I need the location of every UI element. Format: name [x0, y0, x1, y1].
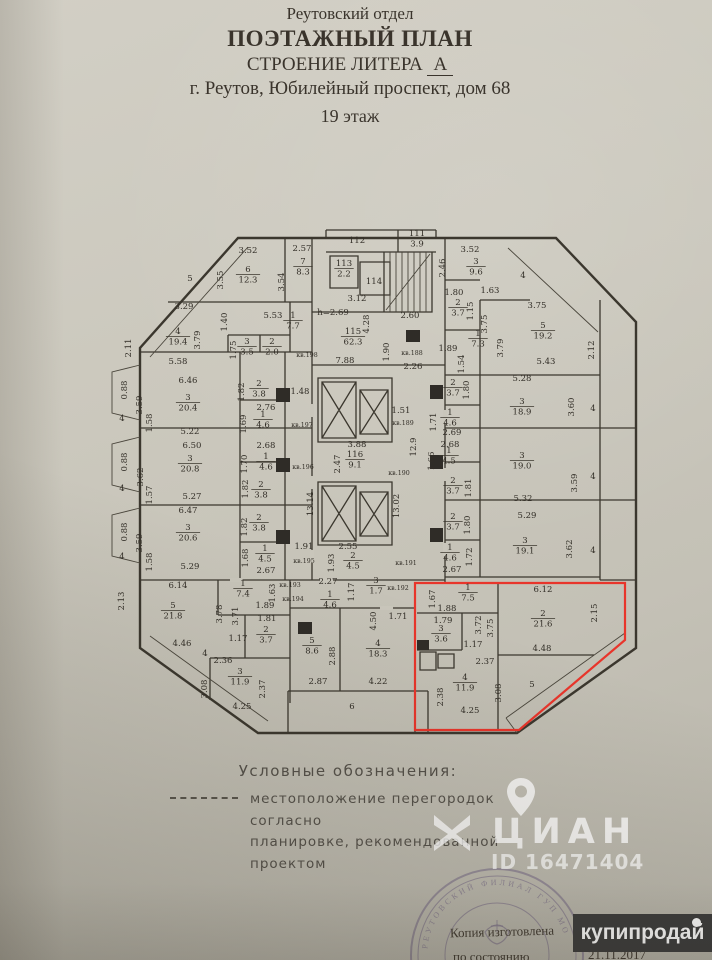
- plan-label: 2.15: [590, 604, 600, 623]
- plan-label: 1: [475, 329, 480, 339]
- plan-label: 4.6: [256, 421, 270, 431]
- plan-label: 20.8: [181, 465, 200, 475]
- plan-label: 11.9: [456, 684, 475, 694]
- plan-label: 5: [529, 680, 534, 690]
- plan-label: 3.52: [461, 245, 480, 255]
- plan-label: 3.59: [135, 534, 145, 553]
- plan-label: 1.7: [369, 587, 383, 597]
- plan-label: 1.57: [145, 486, 155, 505]
- plan-label: 0.88: [120, 381, 130, 400]
- plan-label: 114: [366, 277, 382, 287]
- plan-label: 2: [263, 625, 268, 635]
- plan-label: 2.27: [319, 577, 338, 587]
- plan-label: 4.6: [323, 601, 337, 611]
- plan-label: 6: [245, 265, 250, 275]
- plan-label: 2: [258, 480, 263, 490]
- plan-label: 3.08: [494, 684, 504, 703]
- plan-label: 2.11: [124, 339, 134, 358]
- plan-label: 113: [336, 259, 352, 269]
- copy-state-line: по состоянию: [453, 949, 529, 960]
- plan-label: 21.6: [534, 620, 553, 630]
- plan-label: 2.88: [328, 647, 338, 666]
- plan-label: 5.58: [169, 357, 188, 367]
- copy-made-line: Копия изготовлена: [450, 923, 554, 942]
- plan-label: 1.82: [241, 480, 251, 499]
- plan-label: 7.7: [286, 322, 300, 332]
- plan-label: кв.197: [291, 422, 313, 429]
- plan-label: 1: [447, 408, 452, 418]
- plan-label: 1: [262, 544, 267, 554]
- door-openings: [230, 404, 447, 610]
- plan-label: 3: [438, 624, 443, 634]
- plan-label: 4.6: [259, 463, 273, 473]
- plan-label: 1: [263, 452, 268, 462]
- plan-label: 1.81: [258, 614, 277, 624]
- plan-label: 6.47: [179, 506, 198, 516]
- plan-label: 111: [409, 229, 425, 239]
- plan-label: 13.02: [392, 494, 402, 518]
- plan-label: 1: [447, 543, 452, 553]
- plan-label: 1: [446, 446, 451, 456]
- plan-label: 1.71: [429, 413, 439, 432]
- plan-label: 1.67: [428, 590, 438, 609]
- plan-label: 3.79: [193, 331, 203, 350]
- plan-label: кв.194: [282, 596, 304, 603]
- plan-label: 1: [240, 579, 245, 589]
- plan-label: 1.40: [220, 313, 230, 332]
- plan-label: 4.46: [173, 639, 192, 649]
- plan-label: 5.53: [264, 311, 283, 321]
- plan-label: 1.71: [389, 612, 408, 622]
- plan-label: 3.7: [446, 487, 460, 497]
- plan-label: 1.89: [439, 344, 458, 354]
- plan-label: 3: [519, 451, 524, 461]
- plan-label: 1.51: [392, 406, 411, 416]
- plan-label: 3: [373, 576, 378, 586]
- plan-label: 4: [119, 484, 124, 494]
- plan-label: 3.75: [480, 315, 490, 334]
- plan-label: 4.5: [442, 457, 456, 467]
- plan-label: 1: [290, 311, 295, 321]
- cian-watermark-brand: ЦИАН: [492, 812, 638, 852]
- plan-label: кв.189: [392, 420, 414, 427]
- plan-label: 1.17: [229, 634, 248, 644]
- plan-label: 1.63: [481, 286, 500, 296]
- plan-label: 1.54: [457, 355, 467, 374]
- plan-label: 1.90: [382, 343, 392, 362]
- plan-label: 7: [300, 257, 305, 267]
- building-line: СТРОЕНИЕ ЛИТЕРА А: [0, 54, 700, 76]
- plan-label: 2.47: [333, 455, 343, 474]
- plan-label: 2: [450, 378, 455, 388]
- plan-label: 5.27: [183, 492, 202, 502]
- plan-label: 2.38: [436, 688, 446, 707]
- plan-label: 4.25: [461, 706, 480, 716]
- plan-label: 3.71: [231, 607, 241, 626]
- legend-text-line1: местоположение перегородок согласно: [250, 789, 528, 832]
- plan-label: 9.6: [469, 268, 483, 278]
- plan-label: 3.8: [252, 524, 266, 534]
- plan-label: 1: [327, 590, 332, 600]
- plan-label: 1.91: [295, 542, 314, 552]
- plan-label: 2.36: [214, 656, 233, 666]
- dashed-line-symbol: [170, 797, 238, 799]
- plan-label: 115: [345, 327, 361, 337]
- plan-label: 5.29: [518, 511, 537, 521]
- legend: Условные обозначения: местоположение пер…: [168, 762, 528, 875]
- plan-label: 4.5: [258, 555, 272, 565]
- plan-label: 6.46: [179, 376, 198, 386]
- plan-label: 3.59: [570, 474, 580, 493]
- plan-label: кв.191: [395, 560, 417, 567]
- plan-label: кв.196: [292, 464, 314, 471]
- plan-label: кв.190: [388, 470, 410, 477]
- plan-label: 8.6: [305, 647, 319, 657]
- plan-label: 2: [540, 609, 545, 619]
- plan-label: 2.68: [257, 441, 276, 451]
- plan-label: 1.72: [465, 548, 475, 567]
- plan-label: 4: [119, 552, 124, 562]
- plan-label: 19.0: [513, 462, 532, 472]
- plan-label: 1.88: [438, 604, 457, 614]
- plan-label: 3.7: [446, 523, 460, 533]
- round-stamp: РЕУТОВСКИЙ ФИЛИАЛ ГУП МО: [400, 860, 600, 960]
- kupiprodai-badge-label: купипродай: [581, 921, 705, 945]
- page-title: ПОЭТАЖНЫЙ ПЛАН: [0, 26, 700, 52]
- plan-label: 18.9: [513, 408, 532, 418]
- plan-label: 3: [187, 454, 192, 464]
- plan-label: 4: [520, 271, 525, 281]
- building-letter: А: [427, 54, 453, 76]
- plan-label: 1.75: [229, 341, 239, 360]
- cian-watermark-id: ID 16471404: [491, 850, 644, 874]
- plan-label: 4.28: [362, 315, 372, 334]
- plan-label: 2.60: [401, 311, 420, 321]
- legend-title: Условные обозначения:: [168, 762, 528, 780]
- plan-label: 1.70: [240, 455, 250, 474]
- plan-label: 2: [450, 512, 455, 522]
- plan-label: 1: [465, 583, 470, 593]
- plan-label: 8.3: [296, 268, 310, 278]
- plan-label: кв.198: [296, 352, 318, 359]
- plan-label: 20.6: [179, 534, 198, 544]
- plan-label: 5: [540, 321, 545, 331]
- plan-label: 2.46: [438, 259, 448, 278]
- plan-label: 2.37: [476, 657, 495, 667]
- brand-dot: [692, 918, 701, 927]
- plan-label: 112: [349, 236, 365, 246]
- floor-line: 19 этаж: [0, 106, 700, 127]
- plan-label: 4: [202, 649, 207, 659]
- plan-label: 4: [375, 639, 380, 649]
- plan-label: 3.6: [434, 635, 448, 645]
- plan-label: 2: [455, 298, 460, 308]
- plan-label: 3.8: [252, 390, 266, 400]
- plan-label: 2.13: [117, 592, 127, 611]
- plan-label: 0.88: [120, 453, 130, 472]
- plan-label: 1.17: [347, 583, 357, 602]
- plan-label: 5.28: [513, 374, 532, 384]
- plan-label: 1.89: [256, 601, 275, 611]
- plan-label: 4: [590, 546, 595, 556]
- plan-label: 1.69: [239, 415, 249, 434]
- plan-label: 3: [185, 393, 190, 403]
- plan-label: 3: [237, 667, 242, 677]
- plan-label: 7.3: [471, 340, 485, 350]
- plan-label: 7.4: [236, 590, 250, 600]
- plan-label: 4: [590, 404, 595, 414]
- watermark-x-mark: [430, 813, 474, 851]
- plan-label: 2.37: [258, 680, 268, 699]
- plan-label: 4.6: [443, 419, 457, 429]
- plan-label: 2.67: [257, 566, 276, 576]
- plan-label: 3: [185, 523, 190, 533]
- plan-label: кв.192: [387, 585, 409, 592]
- plan-label: 4.50: [369, 612, 379, 631]
- plan-label: 116: [347, 450, 363, 460]
- plan-label: 2.57: [293, 244, 312, 254]
- plan-label: 7.5: [461, 594, 475, 604]
- plan-label: 1: [260, 410, 265, 420]
- plan-label: 3.79: [496, 339, 506, 358]
- plan-label: 4: [175, 327, 180, 337]
- plan-label: кв.195: [293, 558, 315, 565]
- plan-label: 5.22: [181, 427, 200, 437]
- plan-label: 3.75: [486, 619, 496, 638]
- plan-label: 3.55: [216, 271, 226, 290]
- plan-label: h=2.69: [317, 308, 349, 318]
- plan-label: 11.9: [231, 678, 250, 688]
- plan-label: 19.1: [516, 547, 535, 557]
- plan-label: 9.1: [348, 461, 362, 471]
- plan-label: 62.3: [344, 338, 363, 348]
- plan-label: 3.72: [474, 616, 484, 635]
- plan-label: 1.93: [327, 554, 337, 573]
- plan-label: 1.82: [240, 518, 250, 537]
- plan-label: 5: [187, 274, 192, 284]
- address-line: г. Реутов, Юбилейный проспект, дом 68: [0, 78, 700, 100]
- plan-label: 1.82: [237, 383, 247, 402]
- photo-of-floor-plan-document: Реутовский отдел ПОЭТАЖНЫЙ ПЛАН СТРОЕНИЕ…: [0, 0, 712, 960]
- plan-label: 13.14: [306, 492, 316, 516]
- plan-label: 3: [244, 337, 249, 347]
- plan-label: 3.62: [136, 468, 146, 487]
- plan-label: 1.66: [427, 452, 437, 471]
- plan-label: 3.52: [239, 246, 258, 256]
- plan-label: 1.80: [463, 516, 473, 535]
- plan-label: 12.3: [239, 276, 258, 286]
- plan-label: 2: [256, 513, 261, 523]
- plan-label: 5.29: [181, 562, 200, 572]
- plan-label: 1.48: [291, 387, 310, 397]
- plan-label: 6.50: [183, 441, 202, 451]
- plan-label: 18.3: [369, 650, 388, 660]
- plan-label: 6: [349, 702, 354, 712]
- plan-label: 3.7: [451, 309, 465, 319]
- plan-label: 3.59: [135, 396, 145, 415]
- plan-label: 3.62: [565, 540, 575, 559]
- plan-label: 1.58: [145, 553, 155, 572]
- plan-label: 3.88: [348, 440, 367, 450]
- plan-label: 1.80: [462, 381, 472, 400]
- plan-label: 3.8: [254, 491, 268, 501]
- plan-label: 1.63: [268, 584, 278, 603]
- plan-label: 4: [462, 673, 467, 683]
- kupiprodai-badge: купипродай: [573, 914, 712, 952]
- plan-label: 3.12: [348, 294, 367, 304]
- plan-label: 3: [522, 536, 527, 546]
- plan-label: 2.12: [587, 341, 597, 360]
- plan-label: кв.188: [401, 350, 423, 357]
- plan-label: 2: [350, 551, 355, 561]
- plan-label: 5.32: [514, 494, 533, 504]
- plan-label: 5.43: [537, 357, 556, 367]
- plan-label: 1.17: [464, 640, 483, 650]
- plan-label: 12.9: [409, 438, 419, 457]
- plan-label: 3.7: [446, 389, 460, 399]
- plan-label: 2.67: [443, 565, 462, 575]
- plan-label: 7.88: [336, 356, 355, 366]
- plan-label: 1.80: [445, 288, 464, 298]
- title-block: Реутовский отдел ПОЭТАЖНЫЙ ПЛАН СТРОЕНИЕ…: [0, 4, 700, 127]
- plan-label: 19.4: [169, 338, 188, 348]
- plan-label: 21.8: [164, 612, 183, 622]
- plan-label: 3.78: [215, 605, 225, 624]
- plan-label: 2: [450, 476, 455, 486]
- plan-label: 3.5: [240, 348, 254, 358]
- plan-labels: 1121113.91132.21143.12h=2.694.282.601.90…: [117, 229, 600, 716]
- plan-label: 1.15: [466, 302, 476, 321]
- plan-label: 2.69: [443, 428, 462, 438]
- plan-label: 3.29: [175, 302, 194, 312]
- plan-label: 4.25: [233, 702, 252, 712]
- plan-label: 1.81: [464, 479, 474, 498]
- plan-label: 0.88: [120, 523, 130, 542]
- plan-label: 5: [170, 601, 175, 611]
- plan-label: 4.22: [369, 677, 388, 687]
- plan-label: 19.2: [534, 332, 553, 342]
- plan-label: 6.12: [534, 585, 553, 595]
- plan-label: 5: [309, 636, 314, 646]
- plan-label: 3.54: [277, 273, 287, 292]
- plan-label: 3.75: [528, 301, 547, 311]
- plan-label: 4.48: [533, 644, 552, 654]
- plan-label: 6.14: [169, 581, 188, 591]
- plan-label: 1.58: [145, 414, 155, 433]
- plan-label: 20.4: [179, 404, 198, 414]
- plan-label: 4.6: [443, 554, 457, 564]
- plan-label: 2.2: [337, 270, 351, 280]
- plan-label: 2: [256, 379, 261, 389]
- plan-label: 4.5: [346, 562, 360, 572]
- plan-label: 2.26: [404, 362, 423, 372]
- plan-label: 3.7: [259, 636, 273, 646]
- plan-label: 2.87: [309, 677, 328, 687]
- plan-label: 4: [590, 472, 595, 482]
- plan-label: 3.08: [200, 680, 210, 699]
- plan-label: 2.0: [265, 348, 279, 358]
- plan-label: 1.68: [241, 549, 251, 568]
- plan-label: 3: [519, 397, 524, 407]
- plan-label: 3.9: [410, 240, 424, 250]
- plan-label: 3: [473, 257, 478, 267]
- plan-label: 4: [119, 414, 124, 424]
- plan-label: кв.193: [279, 582, 301, 589]
- plan-label: 3.60: [567, 398, 577, 417]
- plan-label: 2: [269, 337, 274, 347]
- department-line: Реутовский отдел: [0, 4, 700, 24]
